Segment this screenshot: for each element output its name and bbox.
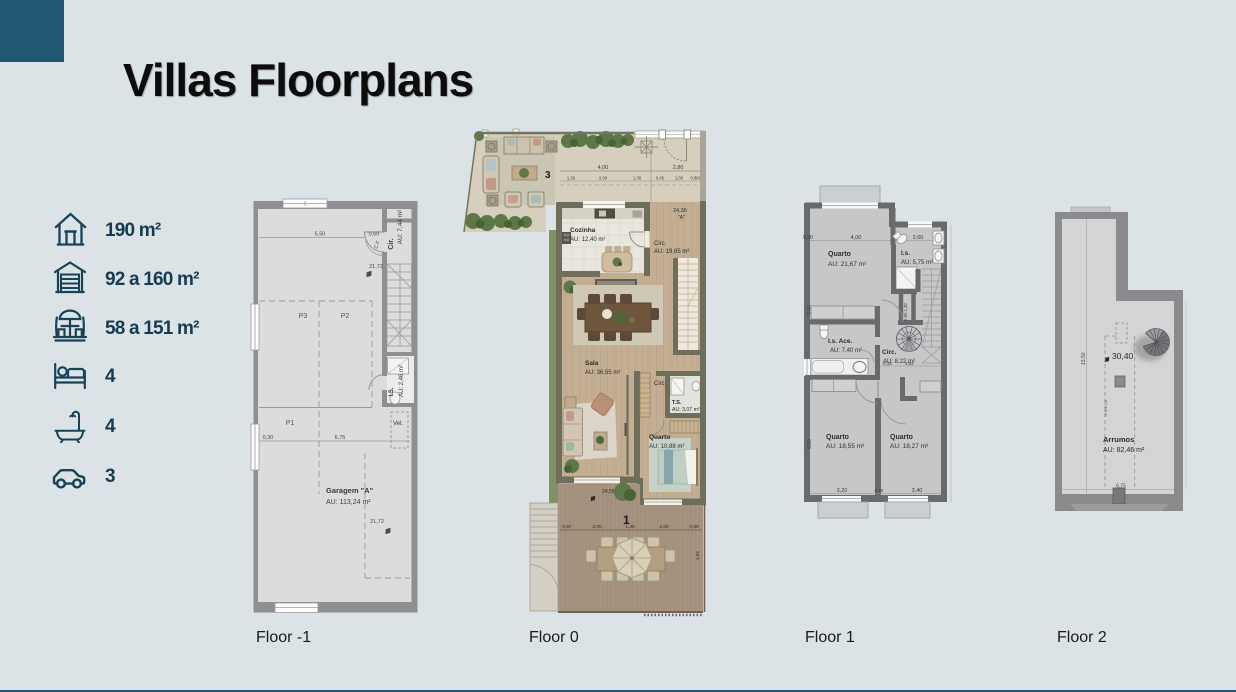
svg-text:Quarto: Quarto	[890, 434, 913, 441]
svg-text:0,95 1,30: 0,95 1,30	[903, 303, 908, 321]
svg-text:3: 3	[545, 170, 551, 181]
svg-text:0,15: 0,15	[875, 488, 884, 493]
svg-text:6,75: 6,75	[335, 435, 346, 441]
svg-text:I.s.: I.s.	[901, 250, 910, 257]
svg-text:AU: 113,24 m²: AU: 113,24 m²	[326, 499, 371, 506]
svg-text:1,00: 1,00	[675, 176, 684, 181]
svg-text:Arrumos: Arrumos	[1103, 435, 1134, 444]
svg-text:AU: 7,40 m²: AU: 7,40 m²	[830, 348, 862, 354]
svg-text:1,30: 1,30	[633, 176, 642, 181]
svg-text:5,60: 5,60	[807, 439, 813, 449]
svg-text:3,52: 3,52	[905, 361, 914, 366]
svg-text:0,30: 0,30	[803, 235, 813, 241]
svg-text:0,15: 0,15	[883, 361, 892, 366]
svg-text:Garagem "A": Garagem "A"	[326, 486, 374, 495]
svg-text:2,00: 2,00	[592, 524, 602, 530]
svg-text:Cozinha: Cozinha	[570, 227, 596, 234]
svg-text:4,00: 4,00	[598, 165, 609, 171]
svg-text:30,40: 30,40	[1112, 351, 1134, 361]
svg-text:24,36: 24,36	[673, 208, 687, 214]
svg-text:"A": "A"	[678, 215, 685, 221]
svg-text:1,30: 1,30	[567, 176, 576, 181]
svg-text:I.s. Ace.: I.s. Ace.	[828, 338, 853, 345]
svg-text:2,60: 2,60	[913, 235, 924, 241]
svg-text:AU: 3,07 m²: AU: 3,07 m²	[672, 407, 700, 413]
svg-text:4,00: 4,00	[851, 235, 862, 241]
svg-text:AU: 10,88 m²: AU: 10,88 m²	[649, 444, 684, 450]
svg-text:21,72: 21,72	[370, 519, 384, 525]
svg-text:AU: 18,55 m²: AU: 18,55 m²	[826, 443, 865, 450]
svg-text:5,50: 5,50	[315, 232, 326, 238]
svg-text:1,35: 1,35	[625, 524, 635, 530]
svg-text:3,20: 3,20	[837, 488, 848, 494]
svg-text:21,72: 21,72	[369, 264, 383, 270]
svg-text:2,80: 2,80	[673, 165, 684, 171]
svg-text:AU: 2,46 m²: AU: 2,46 m²	[399, 365, 405, 397]
svg-text:Vel.: Vel.	[393, 421, 403, 427]
svg-text:P2: P2	[341, 313, 350, 320]
svg-text:AU: 21,67 m²: AU: 21,67 m²	[828, 261, 867, 268]
svg-text:AU: 18,27 m²: AU: 18,27 m²	[890, 443, 929, 450]
svg-text:AU: 36,55 m²: AU: 36,55 m²	[585, 370, 620, 376]
svg-text:AU: 7,44 m²: AU: 7,44 m²	[397, 209, 404, 245]
svg-text:% Enl 2,0: % Enl 2,0	[1103, 399, 1108, 417]
svg-text:Circ.: Circ.	[654, 381, 667, 387]
svg-text:2,00: 2,00	[659, 524, 669, 530]
svg-text:Quarto: Quarto	[649, 434, 670, 441]
svg-text:0,45: 0,45	[656, 176, 665, 181]
svg-text:Quarto: Quarto	[826, 434, 849, 441]
svg-text:0,30: 0,30	[263, 435, 274, 441]
svg-text:AU: 19,65 m²: AU: 19,65 m²	[654, 249, 689, 255]
svg-text:AU: 5,75 m²: AU: 5,75 m²	[901, 260, 933, 266]
svg-text:Cir.: Cir.	[388, 238, 395, 249]
svg-text:Circ.: Circ.	[654, 241, 667, 247]
svg-text:0,80: 0,80	[689, 524, 699, 530]
svg-text:T.S.: T.S.	[672, 400, 682, 406]
svg-text:13,50: 13,50	[1081, 352, 1087, 365]
svg-text:0,60: 0,60	[369, 232, 380, 238]
svg-text:2,00: 2,00	[599, 176, 608, 181]
svg-text:Sala: Sala	[585, 360, 599, 367]
svg-text:Quarto: Quarto	[828, 251, 851, 258]
svg-text:3,40: 3,40	[912, 488, 923, 494]
svg-text:P3: P3	[299, 313, 308, 320]
svg-text:24,55: 24,55	[602, 489, 615, 495]
svg-text:Circ.: Circ.	[882, 349, 897, 356]
svg-text:P1: P1	[286, 420, 295, 427]
svg-text:AU: 12,40 m²: AU: 12,40 m²	[570, 237, 605, 243]
svg-text:4,59: 4,59	[695, 551, 700, 560]
svg-text:I.S.: I.S.	[389, 387, 395, 396]
svg-text:0,57: 0,57	[562, 524, 572, 530]
svg-text:AU: 82,46 m²: AU: 82,46 m²	[1103, 447, 1145, 454]
